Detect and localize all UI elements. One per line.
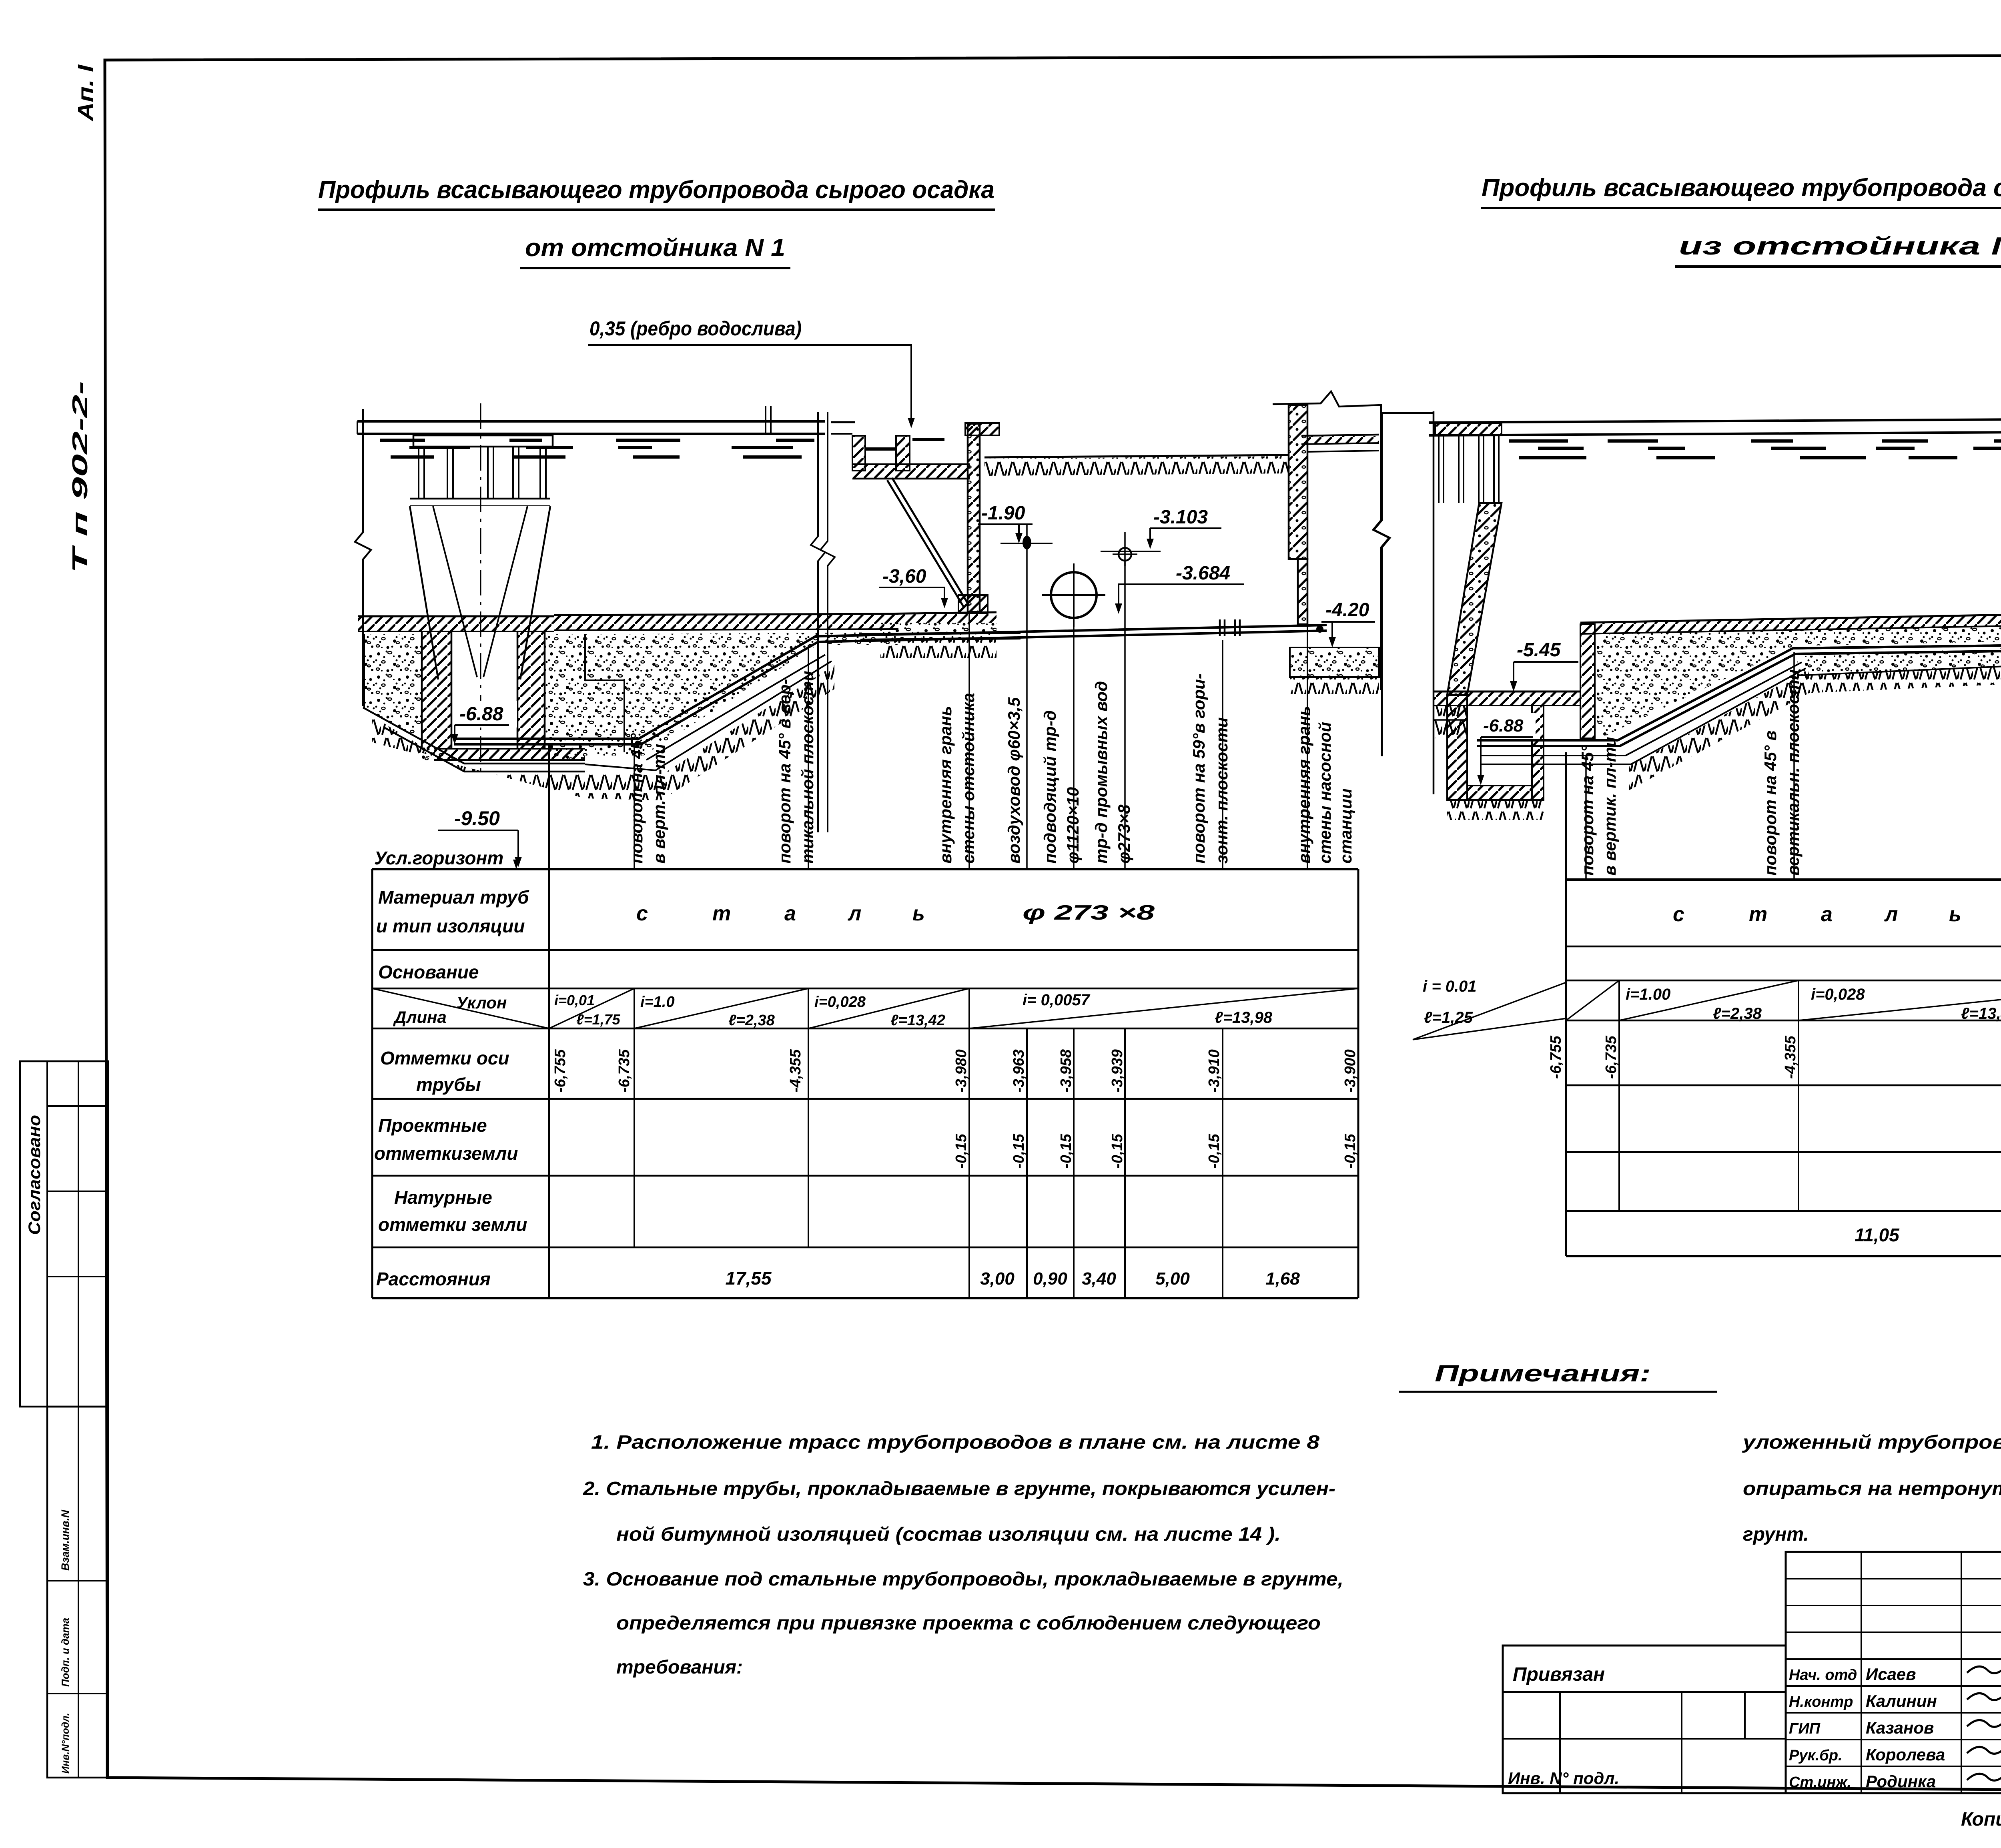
svg-text:-0,15: -0,15 (1011, 1134, 1027, 1169)
svg-text:i=0,01: i=0,01 (554, 992, 595, 1008)
svg-text:i=0,028: i=0,028 (814, 994, 866, 1010)
svg-text:Расстояния: Расстояния (376, 1269, 491, 1289)
svg-text:3,00: 3,00 (980, 1269, 1015, 1289)
svg-text:ной битумной изоляцией (состав: ной битумной изоляцией (состав изоляции … (616, 1524, 1281, 1545)
svg-text:-3,980: -3,980 (953, 1049, 970, 1092)
svg-text:i=0,028: i=0,028 (1811, 986, 1865, 1003)
svg-text:-0,15: -0,15 (1058, 1134, 1075, 1169)
svg-text:внутренняя грань: внутренняя грань (1295, 706, 1313, 864)
svg-text:стены насосной: стены насосной (1315, 722, 1334, 864)
svg-text:-6.88: -6.88 (459, 704, 503, 725)
svg-text:поворот на 45° в вер-: поворот на 45° в вер- (775, 679, 794, 864)
svg-text:воздуховод φ60×3,5: воздуховод φ60×3,5 (1005, 697, 1023, 864)
svg-text:φ1120×10: φ1120×10 (1063, 787, 1082, 864)
svg-text:л: л (847, 902, 861, 925)
svg-text:требования:: требования: (616, 1657, 743, 1678)
svg-text:Казанов: Казанов (1866, 1718, 1934, 1737)
svg-text:ℓ=1,25: ℓ=1,25 (1424, 1009, 1473, 1026)
svg-text:подводящий тр-д: подводящий тр-д (1041, 710, 1059, 864)
svg-text:от отстойника N 1: от отстойника N 1 (525, 234, 785, 262)
svg-text:ь: ь (1949, 903, 1961, 926)
svg-text:с: с (1673, 903, 1684, 926)
svg-text:Копировал: Ч: Копировал: Ч (1961, 1809, 2001, 1830)
svg-text:т: т (712, 902, 731, 925)
svg-text:в вертик. пл-ти: в вертик. пл-ти (1600, 737, 1619, 876)
svg-text:-3,958: -3,958 (1058, 1049, 1075, 1092)
svg-text:Инв. N° подл.: Инв. N° подл. (1508, 1769, 1619, 1788)
svg-text:Проектные: Проектные (378, 1115, 487, 1136)
svg-text:-6,735: -6,735 (1603, 1035, 1620, 1079)
svg-text:л: л (1884, 903, 1898, 926)
svg-text:Ап. I: Ап. I (74, 64, 98, 122)
svg-text:Подп. и дата: Подп. и дата (59, 1618, 71, 1687)
svg-text:Н.контр: Н.контр (1789, 1694, 1853, 1710)
svg-text:-3,939: -3,939 (1109, 1049, 1126, 1092)
svg-text:Основание: Основание (378, 962, 479, 982)
svg-text:-4.20: -4.20 (1325, 599, 1369, 621)
svg-text:Нач. отд: Нач. отд (1789, 1667, 1857, 1684)
svg-text:ℓ=13,42: ℓ=13,42 (890, 1012, 945, 1029)
svg-text:φ 273 ×8: φ 273 ×8 (1023, 901, 1155, 924)
svg-text:т: т (1749, 903, 1767, 926)
svg-text:-0,15: -0,15 (1206, 1134, 1223, 1169)
svg-text:Инв.N°подл.: Инв.N°подл. (60, 1713, 71, 1774)
svg-text:поворот на 45° в: поворот на 45° в (1761, 730, 1780, 876)
svg-text:ГИП: ГИП (1789, 1720, 1821, 1737)
svg-text:Привязан: Привязан (1513, 1664, 1605, 1685)
svg-text:-4,355: -4,355 (1782, 1035, 1799, 1079)
svg-text:стены отстойника: стены отстойника (959, 693, 978, 864)
svg-text:в верт. пл-ти: в верт. пл-ти (650, 744, 668, 864)
svg-text:-3.103: -3.103 (1153, 507, 1208, 528)
svg-text:определяется при привязке про: определяется при привязке проекта с собл… (616, 1613, 1321, 1634)
svg-text:1,68: 1,68 (1265, 1269, 1300, 1289)
svg-text:Длина: Длина (393, 1008, 447, 1026)
svg-text:-4,355: -4,355 (787, 1049, 804, 1092)
svg-text:1. Расположение трасс трубопр: 1. Расположение трасс трубопроводов в пл… (591, 1432, 1319, 1453)
svg-text:2. Стальные трубы, прокладывае: 2. Стальные трубы, прокладываемые в грун… (583, 1478, 1335, 1499)
svg-text:тикальной плоскости: тикальной плоскости (798, 671, 817, 864)
svg-text:ℓ=1,75: ℓ=1,75 (576, 1011, 621, 1028)
svg-text:ℓ=13,42: ℓ=13,42 (1961, 1005, 2001, 1022)
svg-text:ℓ=2,38: ℓ=2,38 (728, 1012, 775, 1029)
svg-text:поворот на 59°в гори-: поворот на 59°в гори- (1189, 673, 1208, 864)
svg-text:Калинин: Калинин (1866, 1692, 1937, 1710)
svg-text:Уклон: Уклон (456, 993, 507, 1012)
svg-text:отметки земли: отметки земли (378, 1214, 527, 1235)
svg-text:3. Основание под стальные тру: 3. Основание под стальные трубопроводы, … (583, 1569, 1343, 1590)
svg-text:11,05: 11,05 (1855, 1225, 1900, 1245)
svg-text:-0,15: -0,15 (953, 1134, 970, 1169)
svg-text:ℓ=2,38: ℓ=2,38 (1713, 1005, 1762, 1022)
svg-text:вертикальн. плоскости: вертикальн. плоскости (1784, 669, 1803, 876)
svg-text:поворот на 45°: поворот на 45° (1578, 745, 1597, 876)
svg-text:уложенный трубопровод на все: уложенный трубопровод на всем протяжении… (1742, 1432, 2001, 1453)
svg-text:-0,15: -0,15 (1342, 1134, 1359, 1169)
svg-text:-6.88: -6.88 (1483, 716, 1524, 736)
svg-text:-6,755: -6,755 (552, 1049, 569, 1092)
svg-text:Отметки оси: Отметки оси (380, 1048, 509, 1068)
svg-text:Профиль всасывающего трубопр: Профиль всасывающего трубопровода сырого… (1482, 174, 2001, 202)
svg-text:3,40: 3,40 (1082, 1269, 1116, 1289)
svg-text:Королева: Королева (1866, 1745, 1945, 1764)
svg-text:и тип изоляции: и тип изоляции (376, 916, 525, 936)
svg-text:Взам.инв.N: Взам.инв.N (59, 1510, 71, 1571)
svg-text:-3.684: -3.684 (1176, 563, 1230, 584)
svg-text:i=1.00: i=1.00 (1626, 986, 1670, 1003)
svg-text:Согласовано: Согласовано (25, 1115, 44, 1235)
svg-text:а: а (784, 902, 796, 925)
svg-text:Ст.инж.: Ст.инж. (1789, 1774, 1851, 1791)
svg-text:Исаев: Исаев (1866, 1665, 1916, 1684)
svg-text:поворот на 45°: поворот на 45° (627, 733, 646, 864)
svg-text:-9.50: -9.50 (454, 807, 500, 830)
svg-text:а: а (1821, 903, 1833, 926)
svg-text:из отстойника N 4: из отстойника N 4 (1679, 233, 2001, 260)
svg-text:-1.90: -1.90 (981, 503, 1025, 524)
svg-text:внутренняя грань: внутренняя грань (936, 706, 955, 864)
svg-text:Натурные: Натурные (394, 1187, 492, 1208)
svg-text:-3,910: -3,910 (1206, 1049, 1223, 1092)
svg-text:Профиль всасывающего трубопр: Профиль всасывающего трубопровода сырого… (318, 176, 994, 204)
svg-text:ℓ=13,98: ℓ=13,98 (1215, 1009, 1273, 1026)
svg-text:-6,735: -6,735 (616, 1049, 633, 1092)
svg-text:Рук.бр.: Рук.бр. (1789, 1747, 1843, 1764)
svg-text:5,00: 5,00 (1155, 1269, 1190, 1289)
svg-text:опираться на нетронутый или: опираться на нетронутый или плотно утрам… (1743, 1478, 2001, 1499)
svg-text:-3,60: -3,60 (882, 566, 926, 587)
svg-text:станции: станции (1336, 788, 1355, 864)
svg-text:-0,15: -0,15 (1109, 1134, 1126, 1169)
svg-text:-3,963: -3,963 (1011, 1049, 1027, 1092)
svg-text:Родинка: Родинка (1866, 1772, 1936, 1791)
svg-text:i=1.0: i=1.0 (640, 994, 675, 1010)
svg-text:Усл.горизонт: Усл.горизонт (374, 848, 503, 868)
svg-text:Т п 902-2-: Т п 902-2- (68, 381, 92, 573)
svg-text:Материал труб: Материал труб (378, 887, 529, 908)
svg-text:зонт. плоскости: зонт. плоскости (1212, 717, 1231, 864)
svg-text:0,35 (ребро водослива): 0,35 (ребро водослива) (589, 317, 802, 340)
svg-text:отметкиземли: отметкиземли (374, 1143, 518, 1164)
svg-text:i= 0,0057: i= 0,0057 (1023, 991, 1091, 1009)
svg-text:0,90: 0,90 (1033, 1269, 1067, 1289)
svg-text:i = 0.01: i = 0.01 (1423, 978, 1477, 995)
svg-text:17,55: 17,55 (725, 1268, 772, 1289)
svg-text:-6,755: -6,755 (1548, 1035, 1564, 1079)
svg-text:φ273×8: φ273×8 (1115, 804, 1133, 864)
svg-text:грунт.: грунт. (1743, 1524, 1809, 1545)
svg-text:Примечания:: Примечания: (1435, 1361, 1651, 1387)
svg-text:трубы: трубы (416, 1074, 481, 1095)
svg-text:ь: ь (912, 902, 925, 925)
svg-text:тр-д промывных вод: тр-д промывных вод (1092, 681, 1111, 864)
svg-text:с: с (636, 902, 648, 925)
svg-text:-3,900: -3,900 (1342, 1049, 1359, 1092)
svg-text:-5.45: -5.45 (1517, 639, 1561, 661)
